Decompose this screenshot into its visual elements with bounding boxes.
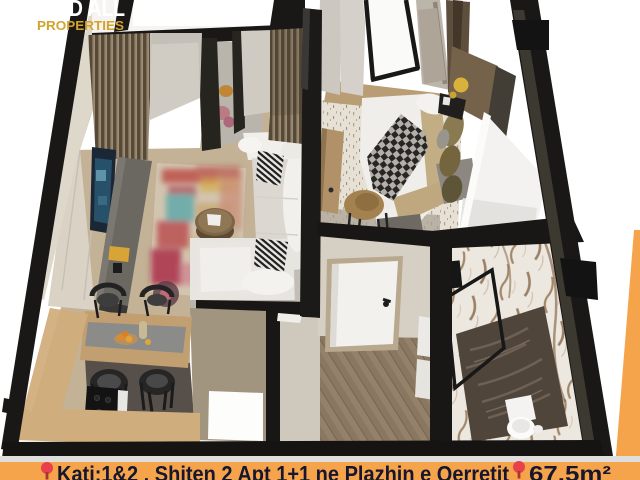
svg-text:67.5m²: 67.5m² [529,462,611,480]
svg-text:PROPERTIES: PROPERTIES [37,18,124,33]
svg-text:Kati:1&2 , Shiten 2 Apt 1+1 ne: Kati:1&2 , Shiten 2 Apt 1+1 ne Plazhin e… [57,462,510,480]
